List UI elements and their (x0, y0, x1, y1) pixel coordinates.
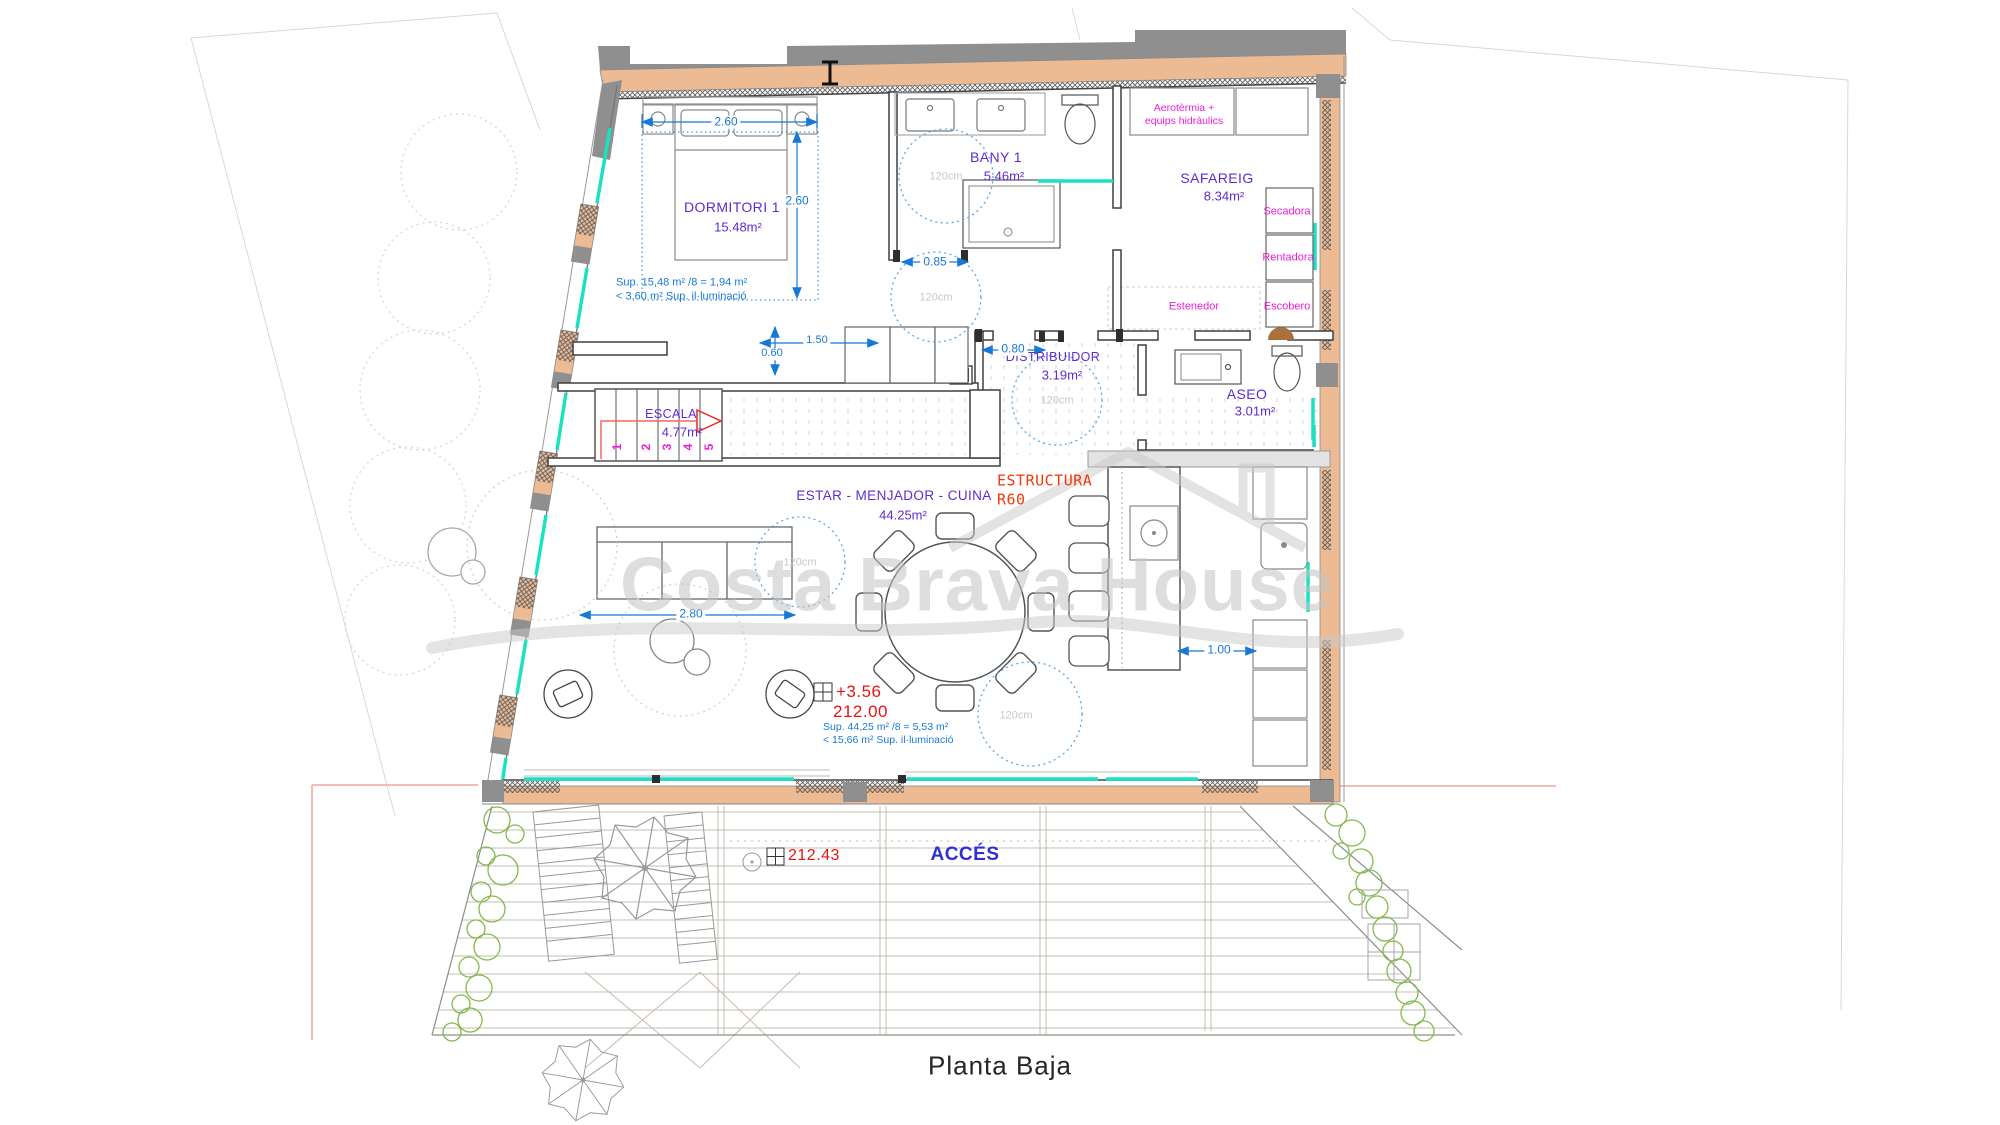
closets (845, 327, 968, 383)
equipment-label-escobero: Escobero (1264, 301, 1310, 314)
armchair (766, 670, 814, 718)
turning-circle-label: 120cm (1040, 395, 1073, 408)
structure-note-line2: R60 (997, 491, 1026, 508)
floor-plan-page: DORMITORI 1 15.48m² Sup. 15,48 m² /8 = 1… (0, 0, 2000, 1125)
equipment-label-rentadora: Rentadora (1262, 252, 1313, 265)
turning-circle-label: 120cm (999, 710, 1032, 723)
turning-circle-label: 120cm (929, 171, 962, 184)
door-leaf (1268, 327, 1294, 340)
room-area-escala: 4.77m² (662, 426, 702, 441)
stair-step-number: 1 (611, 444, 625, 451)
lighting-note-estar-2: < 15,66 m² Sup. il·luminació (823, 734, 953, 746)
room-label-aseo: ASEO (1227, 386, 1268, 402)
equipment-label-aerotermia-2: equips hidràulics (1145, 115, 1223, 127)
room-label-safareig: SAFAREIG (1180, 170, 1253, 186)
aseo-fixtures (1175, 346, 1302, 391)
dim-closet-width: 1.50 (803, 335, 830, 347)
lighting-note-estar-1: Sup. 44,25 m² /8 = 5,53 m² (823, 721, 948, 733)
east-wall (1308, 56, 1344, 802)
level-relative: +3.56 (836, 682, 882, 702)
room-area-aseo: 3.01m² (1235, 405, 1275, 420)
page-title: Planta Baja (928, 1051, 1072, 1082)
lighting-note-dormitori-2: < 3,60 m² Sup. il·luminació (616, 291, 747, 304)
parasol (542, 1039, 624, 1121)
dim-kitchen-aisle: 1.00 (1204, 644, 1233, 657)
level-absolute: 212.00 (833, 702, 888, 722)
dim-bany-door: 0.85 (920, 256, 949, 269)
equipment-label-estenedor: Estenedor (1169, 301, 1219, 314)
dim-closet-depth: 0.60 (758, 348, 785, 360)
bushes (443, 804, 1434, 1041)
room-label-dormitori: DORMITORI 1 (684, 199, 780, 215)
room-area-distribuidor: 3.19m² (1042, 369, 1082, 384)
lighting-note-dormitori-1: Sup. 15,48 m² /8 = 1,94 m² (616, 277, 747, 290)
dim-bed-width: 2.60 (711, 116, 740, 129)
level-terrace: 212.43 (788, 847, 840, 865)
sun-lounger (664, 812, 717, 963)
stair-step-number: 2 (640, 444, 654, 451)
plot-limit-lines (312, 785, 1556, 1040)
room-label-escala: ESCALA (645, 407, 697, 421)
room-area-bany: 5.46m² (984, 170, 1024, 185)
dim-distribuidor-door: 0.80 (998, 343, 1027, 356)
stair-step-number: 4 (682, 444, 696, 451)
armchair (544, 670, 592, 718)
north-wall (592, 30, 1346, 160)
room-label-bany: BANY 1 (970, 149, 1022, 165)
south-wall (482, 770, 1334, 804)
watermark-text: Costa Brava House (620, 542, 1334, 629)
equipment-label-aerotermia-1: Aerotèrmia + (1154, 102, 1214, 114)
room-area-safareig: 8.34m² (1204, 190, 1244, 205)
dim-room-depth: 2.60 (782, 195, 811, 208)
room-label-estar: ESTAR - MENJADOR - CUINA (796, 488, 991, 504)
room-area-estar: 44.25m² (879, 509, 927, 524)
structure-note-line1: ESTRUCTURA (997, 472, 1092, 489)
equipment-label-secadora: Secadora (1263, 206, 1310, 219)
turning-circle-label: 120cm (919, 292, 952, 305)
stair-step-number: 3 (661, 444, 675, 451)
paving-texture (728, 287, 1328, 455)
tree-outlines (345, 114, 517, 675)
garden-structure (1362, 890, 1420, 980)
room-area-dormitori: 15.48m² (714, 221, 762, 236)
access-label: ACCÉS (930, 844, 999, 866)
stair-step-number: 5 (703, 444, 717, 451)
